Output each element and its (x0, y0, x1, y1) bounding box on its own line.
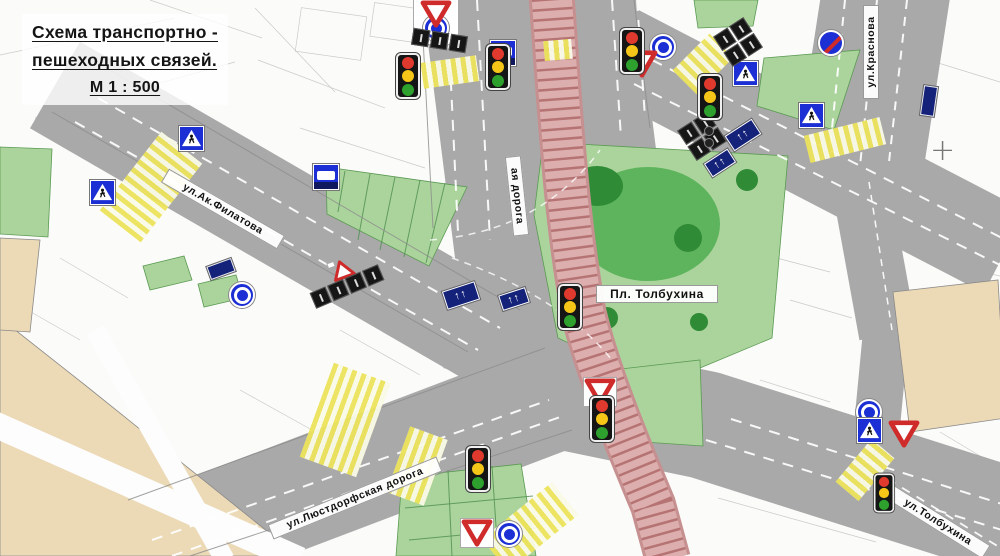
transport-scheme-map: ул.Ак.Филатова ул.Краснова ая дорога Пл.… (0, 0, 1000, 556)
survey-cross-mark: + (930, 136, 955, 166)
pedestrian-signal-lamps-icon (704, 124, 714, 150)
traffic-light-icon (558, 284, 582, 330)
roundabout-sign-icon (496, 521, 522, 547)
pedestrian-crossing-sign-icon (799, 103, 824, 128)
traffic-light-icon (620, 28, 644, 74)
traffic-light-icon (590, 396, 614, 442)
street-label-krasnova: ул.Краснова (863, 5, 879, 99)
warning-triangle-sign-icon (327, 262, 334, 268)
pedestrian-crossing-sign-icon (857, 418, 882, 443)
title-line-2: пешеходных связей. (32, 46, 218, 74)
yield-sign-icon (888, 420, 920, 448)
traffic-light-icon (396, 53, 420, 99)
traffic-light-icon (486, 44, 510, 90)
pedestrian-crossing-sign-icon (90, 180, 115, 205)
pedestrian-crossing-sign-icon (733, 61, 758, 86)
no-stopping-sign-icon (818, 30, 844, 56)
traffic-light-icon (874, 473, 894, 512)
map-title: Схема транспортно - пешеходных связей. М… (22, 14, 228, 105)
place-label-tolbukhina-square: Пл. Толбухина (596, 285, 718, 303)
map-scale: М 1 : 500 (32, 75, 218, 101)
bus-stop-sign-icon (313, 164, 339, 190)
traffic-light-icon (466, 446, 490, 492)
yield-sign-icon (420, 0, 452, 28)
title-line-1: Схема транспортно - (32, 18, 218, 46)
pedestrian-crosswalk (543, 39, 573, 61)
pedestrian-crossing-sign-icon (179, 126, 204, 151)
traffic-light-icon (698, 74, 722, 120)
roundabout-sign-icon (229, 282, 255, 308)
yield-sign-icon (461, 519, 493, 547)
